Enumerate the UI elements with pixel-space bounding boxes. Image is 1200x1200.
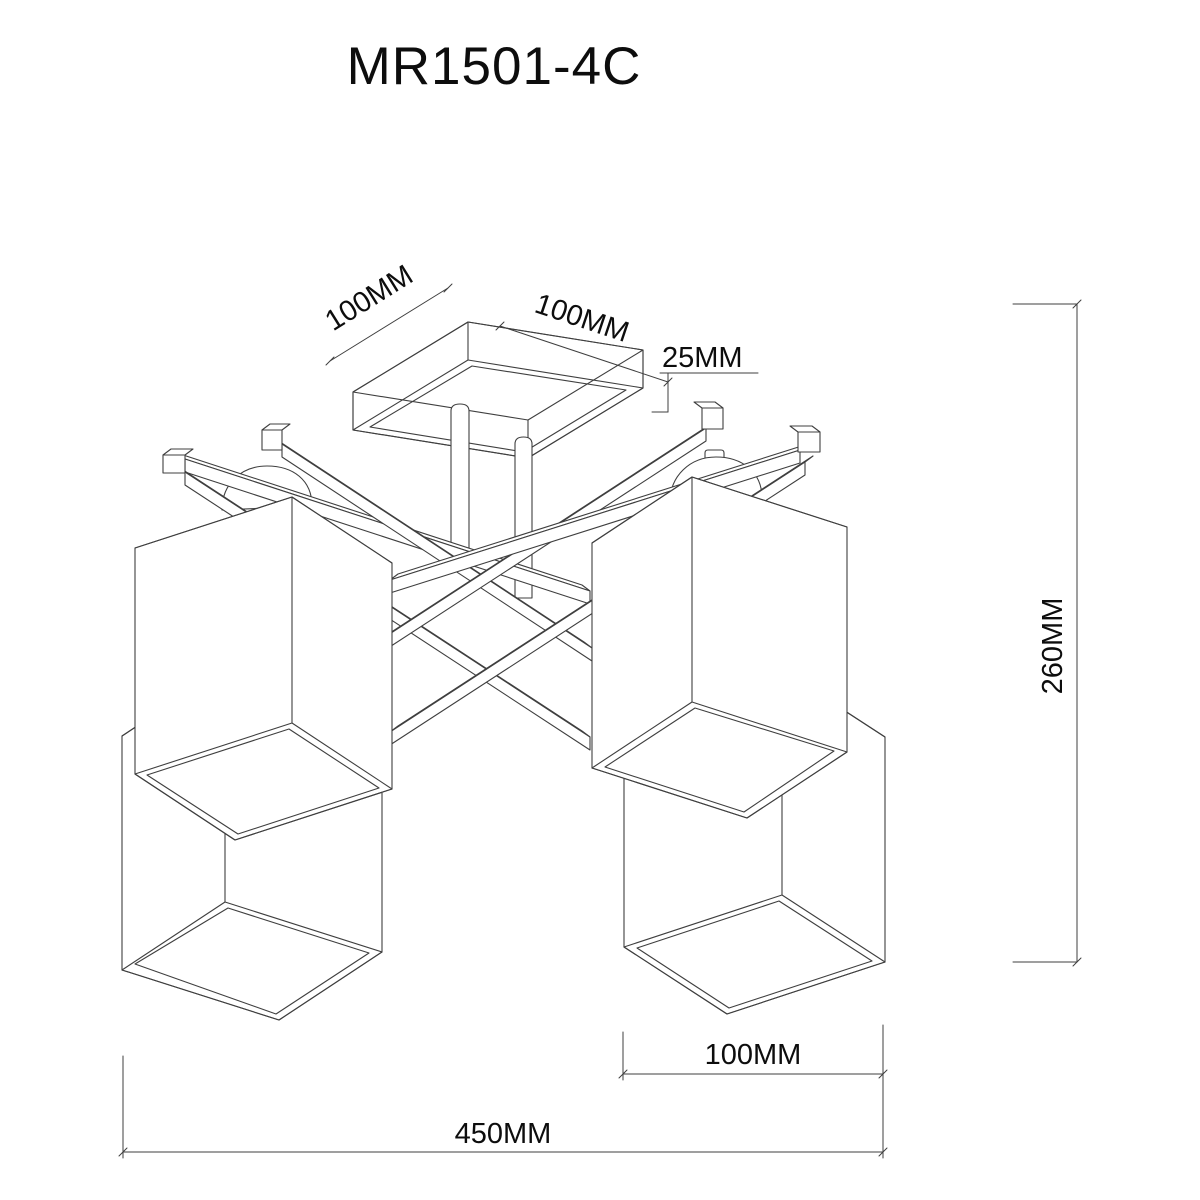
finial-top-face [790, 426, 820, 432]
finial-top-face [262, 424, 290, 430]
dim-fixture-width: 450MM [119, 1056, 887, 1158]
shade-silhouette [592, 477, 847, 818]
drawing-title: MR1501-4C [347, 37, 642, 96]
dim-label-canopy-left: 100MM [320, 259, 419, 337]
finial-front-face [163, 455, 185, 473]
shade-upper-right [592, 477, 847, 818]
canopy-body [353, 322, 643, 458]
finial-top-face [694, 402, 723, 408]
technical-drawing-canvas: MR1501-4C [0, 0, 1200, 1200]
arm-finial-inner-right [694, 402, 723, 429]
finial-front-face [262, 430, 282, 450]
dim-label-fixture-height: 260MM [1037, 598, 1069, 695]
ceiling-canopy [353, 322, 643, 458]
finial-top-face [163, 449, 193, 455]
dim-fixture-height: 260MM [1013, 300, 1081, 966]
finial-front-face [702, 408, 723, 429]
shade-silhouette [135, 497, 392, 840]
dim-label-shade-width: 100MM [705, 1039, 802, 1071]
shade-upper-left [135, 497, 392, 840]
technical-drawing-page: MR1501-4C [0, 0, 1200, 1200]
dim-label-canopy-height: 25MM [662, 342, 743, 374]
dim-label-fixture-width: 450MM [455, 1118, 552, 1150]
dim-shade-width: 100MM [619, 1025, 887, 1158]
finial-front-face [798, 432, 820, 452]
hanger-rod-left [451, 404, 469, 566]
